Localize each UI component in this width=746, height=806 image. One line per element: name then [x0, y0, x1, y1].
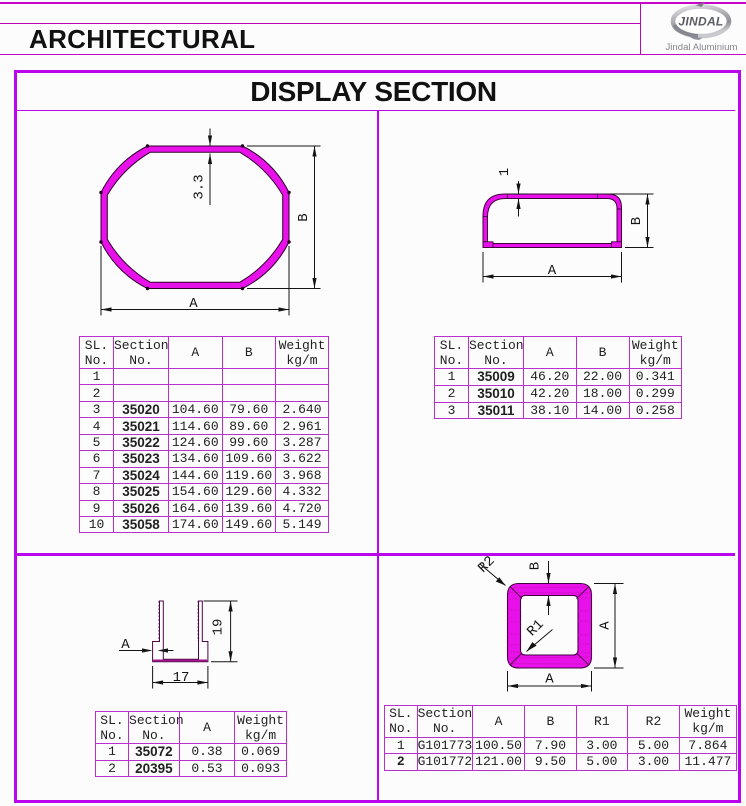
- svg-text:19: 19: [211, 619, 227, 636]
- svg-text:B: B: [629, 217, 645, 225]
- svg-text:A: A: [598, 621, 614, 630]
- svg-text:A: A: [545, 672, 554, 688]
- svg-text:R2: R2: [475, 553, 498, 576]
- svg-text:B: B: [528, 562, 544, 570]
- svg-text:A: A: [121, 637, 130, 653]
- svg-text:1: 1: [497, 168, 513, 176]
- svg-text:B: B: [296, 213, 312, 221]
- svg-text:3.3: 3.3: [192, 174, 208, 199]
- svg-text:A: A: [189, 296, 198, 312]
- svg-text:A: A: [548, 263, 557, 279]
- svg-text:17: 17: [173, 670, 190, 686]
